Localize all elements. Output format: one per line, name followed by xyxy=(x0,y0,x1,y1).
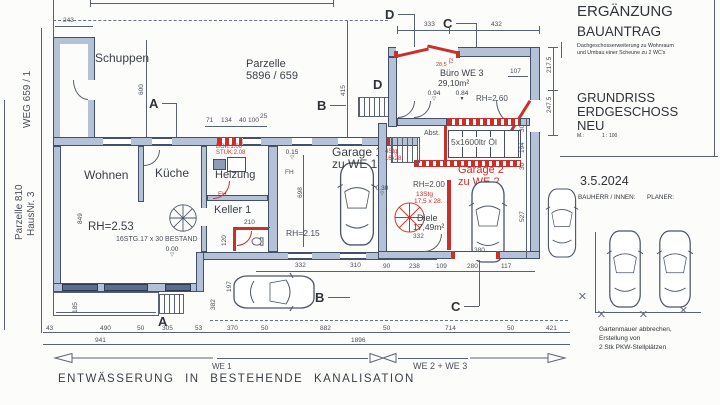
level-triangle-icon: ▽ xyxy=(372,192,392,196)
marker-line xyxy=(456,23,476,24)
date: 3.5.2024 xyxy=(580,174,629,188)
dim-243: 243 xyxy=(63,17,74,24)
hausnr-label: HausNr. 3 xyxy=(26,192,37,236)
dim-line xyxy=(526,118,527,258)
room-label-wohnen: Wohnen xyxy=(84,168,128,182)
dim-197: 197 xyxy=(226,281,233,292)
dim-120: 120 xyxy=(221,235,228,246)
dim-714: 714 xyxy=(445,325,456,332)
dim-line xyxy=(55,26,93,27)
dim-333: 333 xyxy=(424,21,435,28)
door-arc xyxy=(414,101,431,118)
dim-217-5: 217.5 xyxy=(546,57,553,73)
toilet-icon xyxy=(251,236,264,247)
dim-line-415 xyxy=(347,21,348,137)
dim-370: 370 xyxy=(227,325,238,332)
label-we1: WE 1 xyxy=(212,362,232,371)
dim-280: 280 xyxy=(467,263,478,270)
label-stuk: STUK:2.08 xyxy=(216,150,245,156)
x-mark-icon: × xyxy=(597,306,606,323)
west-boundary-line xyxy=(41,28,42,333)
dim-194: 194 xyxy=(519,142,526,153)
marker-line xyxy=(464,306,479,307)
label-oil-tanks: 5x1600ltr Öl xyxy=(451,137,497,147)
dim-50: 50 xyxy=(507,325,514,332)
dim-line xyxy=(397,30,540,31)
dim-107: 107 xyxy=(510,68,521,75)
dim-117: 117 xyxy=(501,263,511,270)
new-wall-red-striped xyxy=(447,118,520,126)
arrow-line xyxy=(217,358,368,359)
scheune-east-wall xyxy=(530,47,540,259)
dim-415: 415 xyxy=(340,85,347,96)
car-icon-east xyxy=(545,184,579,262)
dim-1896: 1896 xyxy=(351,337,365,344)
dim-line-right xyxy=(553,47,554,135)
parzelle-mid-label-1: Parzelle xyxy=(246,58,286,70)
schuppen-door-opening xyxy=(87,80,95,100)
dim-tick xyxy=(449,26,450,34)
title-bauantrag: BAUANTRAG xyxy=(577,24,661,39)
level-triangle-icon: ▽ xyxy=(282,156,302,160)
section-marker-d-left: D xyxy=(373,77,382,92)
dim-185: 185 xyxy=(72,302,79,313)
label-fh: FH xyxy=(285,169,294,176)
dim-90: 90 xyxy=(383,263,390,270)
window-dark xyxy=(104,284,148,291)
dim-238: 238 xyxy=(409,263,420,270)
room-label-garage2-1: Garage 2 xyxy=(458,164,504,176)
level-0.00: 0.00▽ xyxy=(161,247,183,257)
label-fh-red: FH xyxy=(218,191,227,198)
dim-72: 72 xyxy=(449,58,455,64)
dim-line xyxy=(238,227,270,228)
dim-432: 432 xyxy=(491,21,502,28)
exterior-stair xyxy=(358,97,392,117)
parking-boundary xyxy=(595,232,596,312)
x-mark-icon: × xyxy=(578,288,587,305)
new-jamb-red xyxy=(451,251,455,259)
room-label-kueche: Küche xyxy=(155,166,189,180)
dim-332-diele: 332 xyxy=(413,233,424,240)
car-icon-parking-2 xyxy=(656,228,694,310)
garage-door-opening xyxy=(338,137,362,145)
dim-50: 50 xyxy=(137,325,144,332)
title-block-divider xyxy=(560,156,718,157)
floor-plan: WEG 659 / 1 Parzelle 810 HausNr. 3 Parze… xyxy=(0,0,720,405)
window xyxy=(340,253,366,259)
drawing-title-1: GRUNDRISS xyxy=(577,90,655,105)
drawing-title-2: ERDGESCHOSS xyxy=(577,104,678,119)
dim-30-b: 30 xyxy=(519,163,526,170)
dim-109: 109 xyxy=(436,263,447,270)
door-arc xyxy=(424,234,442,252)
garage2-door-opening xyxy=(455,251,496,260)
dim-chain-line xyxy=(43,332,570,333)
dim-332-court: 332 xyxy=(295,262,306,269)
spiral-stair-icon xyxy=(168,202,198,234)
label-we2-we3: WE 2 + WE 3 xyxy=(413,361,467,371)
new-wall-red xyxy=(447,180,451,250)
arrow-left-icon xyxy=(52,352,215,364)
window-dark xyxy=(165,284,191,291)
dim-line xyxy=(256,271,535,272)
title-ergaenzung: ERGÄNZUNG xyxy=(577,3,673,20)
top-dim-line xyxy=(90,3,333,4)
entry-steps xyxy=(158,294,184,314)
dim-210: 210 xyxy=(244,219,255,226)
dim-line-600 xyxy=(146,40,147,137)
new-jamb-red xyxy=(456,51,460,58)
arrow-line xyxy=(398,358,468,359)
boundary-line xyxy=(53,0,54,37)
label-rh260: RH=2.60 xyxy=(476,94,508,103)
buero-west-wall xyxy=(388,57,397,127)
parzelle-810-label: Parzelle 810 xyxy=(14,184,25,240)
room-label-buero-1: Büro WE 3 xyxy=(440,68,484,78)
dim-tick xyxy=(90,0,91,7)
room-label-keller: Keller 1 xyxy=(214,204,251,216)
property-dashed-line xyxy=(53,20,388,21)
marker-line xyxy=(398,14,414,15)
window xyxy=(103,138,131,145)
dim-134: 134 xyxy=(221,117,232,124)
section-marker-b-bottom: B xyxy=(315,290,324,305)
new-door-arc-red xyxy=(237,231,252,246)
label-13stg: 13Stg xyxy=(416,191,433,198)
dim-310: 310 xyxy=(350,262,361,269)
new-wall-red xyxy=(444,126,447,162)
room-label-buero-2: 29,10m² xyxy=(438,78,469,88)
far-west-line xyxy=(4,100,5,330)
dim-71: 71 xyxy=(206,117,213,124)
label-16x28: 16x28 xyxy=(385,156,401,162)
level-0.94: 0.94▽ xyxy=(424,91,444,101)
window xyxy=(288,253,312,259)
window xyxy=(152,138,172,145)
dim-tick xyxy=(333,0,334,7)
marker-line xyxy=(479,260,480,306)
car-icon-parking-1 xyxy=(606,228,644,310)
section-marker-a-top: A xyxy=(149,96,158,111)
dim-tick xyxy=(539,26,540,34)
dim-line xyxy=(508,76,528,77)
dim-50: 50 xyxy=(383,325,390,332)
dim-382: 382 xyxy=(210,299,217,310)
dim-600: 600 xyxy=(138,84,145,95)
west-wall xyxy=(53,146,61,292)
room-label-schuppen: Schuppen xyxy=(95,51,149,65)
level-0.30: 0.30▽ xyxy=(372,186,392,196)
dim-849: 849 xyxy=(77,213,84,224)
garage1-west-wall xyxy=(268,146,278,252)
scale-value: 1 : 100 xyxy=(602,133,617,139)
section-marker-c-top: C xyxy=(443,16,452,31)
marker-line xyxy=(476,23,477,47)
label-bauherr: BAUHERR / INNEN: xyxy=(578,194,635,201)
weg-label: WEG 659 / 1 xyxy=(22,71,33,128)
section-marker-c-bottom: C xyxy=(451,299,460,314)
garden-wall-note-1: Gartenmauer abbrechen, xyxy=(599,326,672,333)
dim-line-698 xyxy=(303,155,304,247)
dim-total-line xyxy=(43,344,570,345)
dim-tick xyxy=(548,90,558,91)
buero-south-wall xyxy=(397,118,447,126)
dim-527: 527 xyxy=(519,211,526,222)
dim-43: 43 xyxy=(46,325,53,332)
dim-100: 100 xyxy=(248,117,259,124)
dim-490: 490 xyxy=(100,325,111,332)
subtitle-2: und Umbau einer Scheune zu 2 WC's xyxy=(577,50,665,56)
dim-305: 305 xyxy=(162,325,173,332)
scale-key: M.: xyxy=(577,133,584,139)
dim-53: 53 xyxy=(195,325,202,332)
room-label-heizung: Heizung xyxy=(215,169,255,181)
window-dark xyxy=(62,284,98,291)
label-4stg: 4Stg xyxy=(385,149,397,155)
new-wc-wall-red xyxy=(233,230,236,251)
room-label-garage1-2: zu WE 1 xyxy=(332,157,377,171)
dim-tick xyxy=(548,135,558,136)
dim-698: 698 xyxy=(297,187,304,198)
drawing-title-3: NEU xyxy=(577,118,604,133)
level-triangle-icon: ▼ xyxy=(452,97,472,101)
car-icon-courtyard xyxy=(231,272,317,312)
subtitle-1: Dachgeschosserweiterung zu Wohnraum xyxy=(577,43,674,49)
level-0.84: 0.84▼ xyxy=(452,91,472,101)
marker-line xyxy=(176,103,177,137)
garden-wall-note-3: 2 Stk PKW-Stellplätzen xyxy=(599,344,666,351)
dim-941: 941 xyxy=(95,337,106,344)
label-planer: PLANER: xyxy=(647,194,674,201)
window xyxy=(292,137,312,145)
car-icon-garage1 xyxy=(336,161,378,247)
marker-line xyxy=(330,105,346,106)
drainage-note: ENTWÄSSERUNG IN BESTEHENDE KANALISATION xyxy=(58,373,415,385)
room-label-abst: Abst. xyxy=(424,130,440,137)
dim-line xyxy=(205,126,267,127)
label-stair-bestand: 16STG.17 x 30 BESTAND xyxy=(116,236,198,243)
dim-247-5: 247.5 xyxy=(546,97,553,113)
title-block-mark xyxy=(561,42,562,58)
label-rh200: RH=2.00 xyxy=(413,180,445,189)
corner-door-opening xyxy=(530,100,540,132)
dim-30-a: 30 xyxy=(519,125,526,132)
dashed-line-south xyxy=(210,320,568,321)
section-marker-d-top: D xyxy=(385,7,394,22)
room-label-diele-2: 17,49m² xyxy=(413,222,444,232)
dim-882: 882 xyxy=(320,325,331,332)
dim-tick xyxy=(548,47,558,48)
marker-line xyxy=(162,103,176,104)
level-triangle-icon: ▽ xyxy=(161,253,183,257)
terrace-line xyxy=(56,312,156,313)
parzelle-mid-label-2: 5896 / 659 xyxy=(246,70,298,82)
dim-40: 40 xyxy=(239,117,246,124)
garden-wall-note-2: Erstellung von xyxy=(599,335,640,342)
dim-421: 421 xyxy=(546,325,557,332)
label-rh253: RH=2.53 xyxy=(88,221,134,233)
new-jamb-red xyxy=(496,251,500,259)
level-0.15: 0.15▽ xyxy=(282,150,302,160)
section-marker-b-top: B xyxy=(317,98,326,113)
dim-tick xyxy=(397,26,398,34)
step-wall xyxy=(196,252,204,292)
dim-25: 25 xyxy=(260,113,267,120)
door-opening xyxy=(201,208,207,226)
door-arc xyxy=(144,150,160,166)
title-block-border xyxy=(714,0,715,156)
flow-divider-icon xyxy=(368,352,398,364)
window xyxy=(243,138,261,145)
marker-line xyxy=(328,297,350,298)
door-arc xyxy=(398,101,415,118)
dim-50: 50 xyxy=(261,325,268,332)
arrow-right-icon xyxy=(468,352,568,364)
